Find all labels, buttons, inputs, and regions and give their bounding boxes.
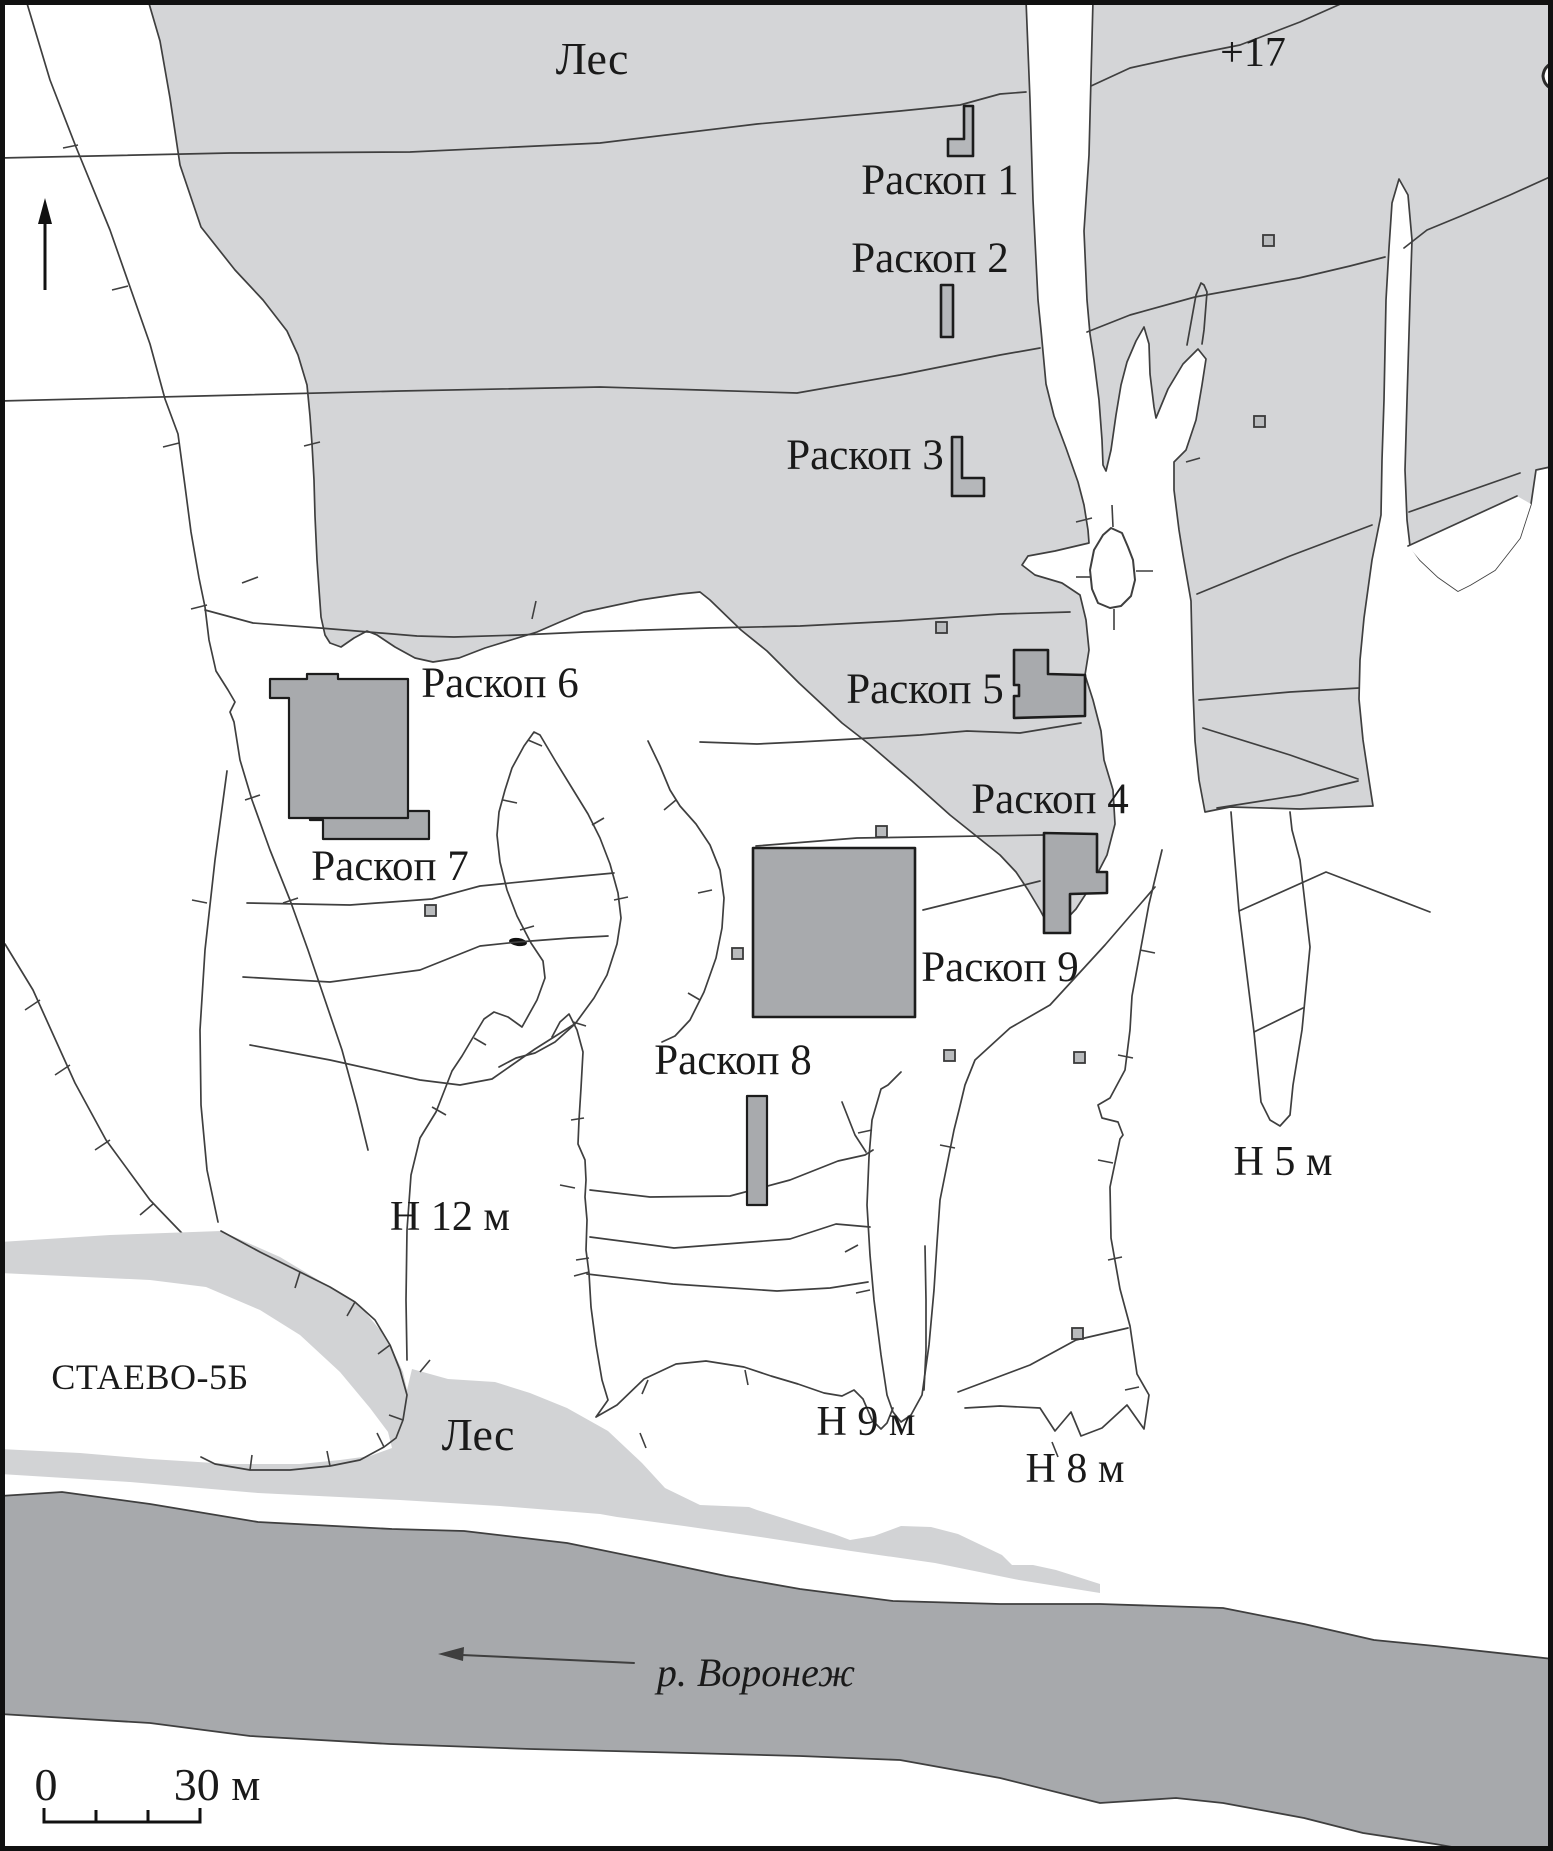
svg-text:СТАЕВО-5Б: СТАЕВО-5Б: [51, 1357, 248, 1397]
svg-text:Раскоп 6: Раскоп 6: [421, 660, 579, 707]
svg-text:Раскоп 1: Раскоп 1: [861, 157, 1019, 204]
svg-text:+17: +17: [1220, 30, 1286, 76]
svg-text:Н 9 м: Н 9 м: [817, 1399, 916, 1445]
svg-text:Раскоп 7: Раскоп 7: [311, 843, 469, 890]
svg-text:Н 12 м: Н 12 м: [390, 1194, 510, 1240]
svg-text:Раскоп 8: Раскоп 8: [654, 1037, 812, 1084]
svg-text:30 м: 30 м: [174, 1759, 261, 1810]
svg-text:Раскоп 4: Раскоп 4: [971, 776, 1129, 823]
svg-text:Н 5 м: Н 5 м: [1234, 1139, 1333, 1185]
svg-text:Раскоп 5: Раскоп 5: [846, 666, 1004, 713]
svg-text:Раскоп 9: Раскоп 9: [921, 944, 1079, 991]
svg-text:Н 8 м: Н 8 м: [1026, 1446, 1125, 1492]
svg-text:Лес: Лес: [556, 33, 629, 84]
svg-text:0: 0: [35, 1759, 58, 1810]
svg-text:р. Воронеж: р. Воронеж: [654, 1650, 855, 1695]
svg-text:Раскоп 3: Раскоп 3: [786, 432, 944, 479]
svg-text:Лес: Лес: [442, 1409, 515, 1460]
svg-text:Раскоп 2: Раскоп 2: [851, 235, 1009, 282]
